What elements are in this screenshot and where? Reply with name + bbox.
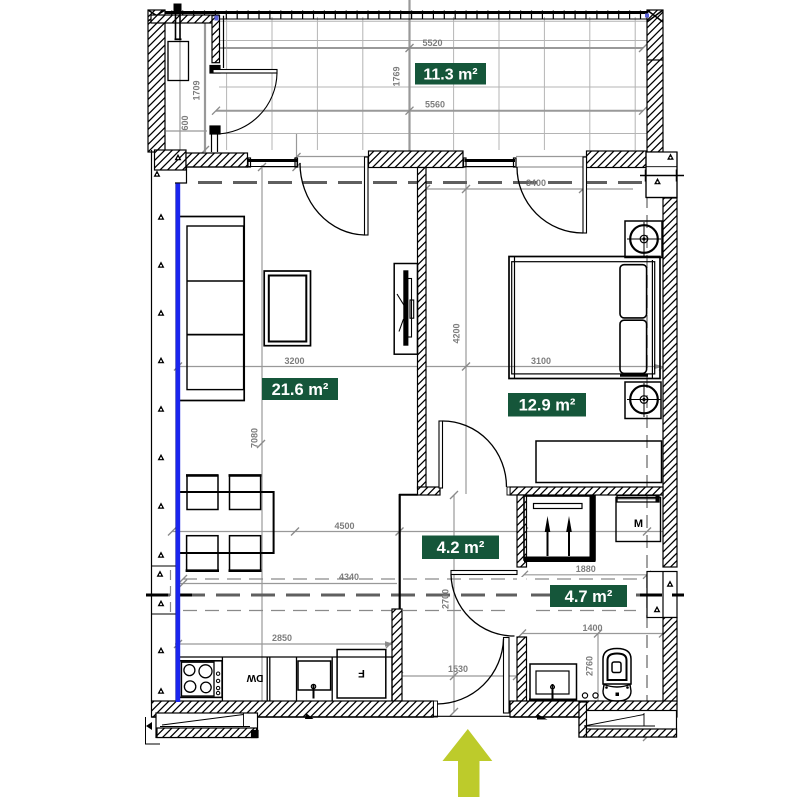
svg-text:1769: 1769 <box>392 66 402 86</box>
svg-text:2760: 2760 <box>585 656 595 676</box>
svg-text:21.6 m²: 21.6 m² <box>272 381 329 399</box>
svg-text:5560: 5560 <box>425 100 445 110</box>
svg-text:4.2 m²: 4.2 m² <box>437 539 485 557</box>
svg-text:DW: DW <box>246 672 263 683</box>
svg-text:3400: 3400 <box>526 178 546 188</box>
svg-text:5520: 5520 <box>422 38 442 48</box>
svg-text:11.3 m²: 11.3 m² <box>423 67 477 84</box>
svg-text:4500: 4500 <box>334 521 354 531</box>
svg-text:1709: 1709 <box>192 80 202 100</box>
svg-text:4340: 4340 <box>339 572 359 582</box>
svg-text:7080: 7080 <box>250 428 260 448</box>
svg-text:600: 600 <box>180 115 190 130</box>
svg-text:1880: 1880 <box>576 564 596 574</box>
svg-text:M: M <box>634 518 643 530</box>
svg-text:1400: 1400 <box>582 623 602 633</box>
svg-text:F: F <box>358 667 365 679</box>
svg-text:3200: 3200 <box>284 356 304 366</box>
svg-text:4200: 4200 <box>452 323 462 343</box>
svg-text:4.7 m²: 4.7 m² <box>565 588 613 606</box>
svg-text:12.9 m²: 12.9 m² <box>519 397 576 415</box>
svg-text:3100: 3100 <box>531 356 551 366</box>
svg-text:2850: 2850 <box>272 633 292 643</box>
svg-text:1530: 1530 <box>448 664 468 674</box>
svg-text:2700: 2700 <box>441 589 451 609</box>
